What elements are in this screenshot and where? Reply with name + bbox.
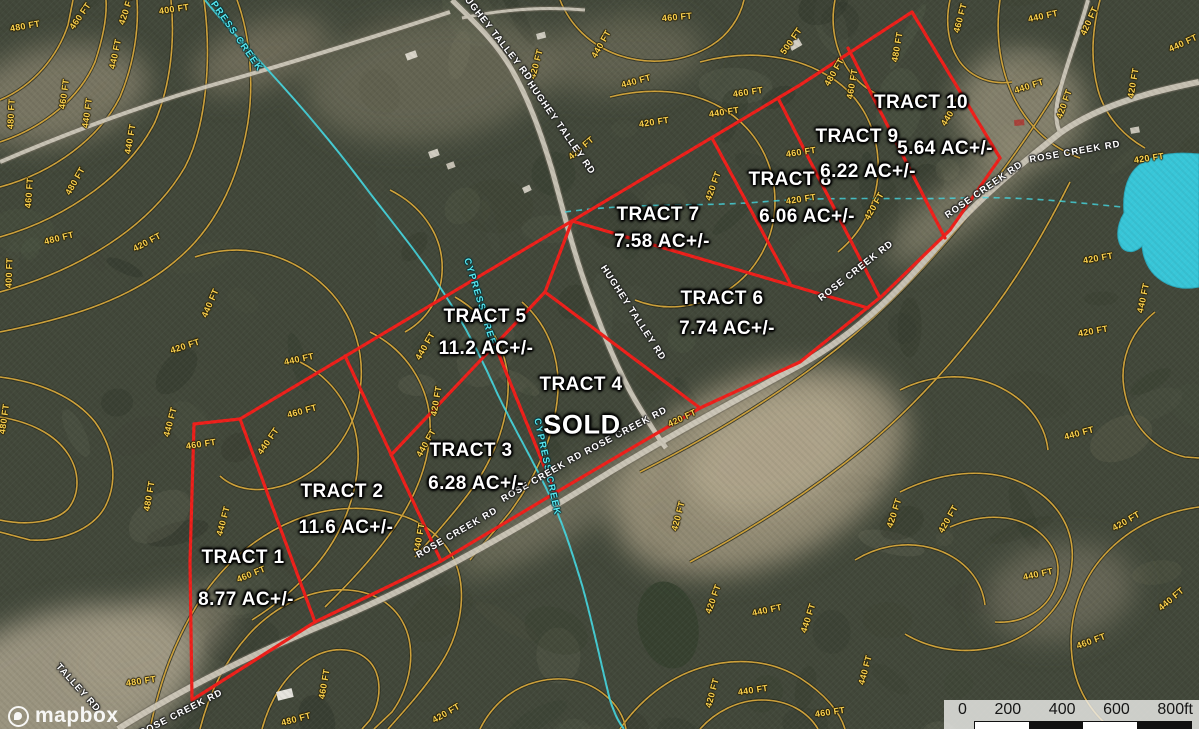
road-name-label: ROSE CREEK RD — [1029, 139, 1122, 166]
road-name-label: ROSE CREEK RD — [816, 238, 895, 303]
contour-elevation-label: 440 FT — [589, 28, 613, 59]
scale-bar-segment — [1137, 722, 1191, 729]
scale-tick-label: 400 — [1049, 701, 1076, 719]
road-name-label: ROSE CREEK RD — [414, 505, 499, 561]
tract-name-label: TRACT 2 — [300, 481, 383, 503]
scale-tick-label: 600 — [1103, 701, 1130, 719]
contour-elevation-label: 440 FT — [199, 287, 220, 319]
contour-elevation-label: 460 FT — [1075, 631, 1107, 651]
contour-elevation-label: 420 FT — [862, 190, 886, 221]
contour-elevation-label: 460 FT — [185, 437, 216, 451]
contour-elevation-label: 480 FT — [0, 403, 11, 434]
contour-elevation-label: 420 FT — [1078, 5, 1100, 37]
contour-elevation-label: 480 FT — [63, 165, 87, 196]
contour-elevation-label: 440 FT — [122, 123, 137, 155]
tract-name-label: TRACT 6 — [680, 288, 763, 310]
tract-name-label: TRACT 5 — [443, 306, 526, 328]
tract-acreage-label: 6.22 AC+/- — [820, 161, 916, 183]
creek-name-label: CYPRESS CREEK — [199, 0, 265, 74]
contour-elevation-label: 440 FT — [1013, 77, 1045, 96]
contour-elevation-label: 440 FT — [413, 330, 437, 361]
contour-elevation-label: 440 FT — [161, 406, 179, 438]
contour-elevation-label: 480 FT — [5, 99, 17, 130]
contour-elevation-label: 400 FT — [3, 258, 14, 289]
contour-elevation-label: 440 FT — [255, 426, 281, 457]
contour-elevation-label: 460 FT — [23, 178, 35, 209]
scale-tick-label: 0 — [958, 701, 967, 719]
contour-elevation-label: 500 FT — [778, 26, 804, 57]
road-name-label: ROSE CREEK RD — [943, 159, 1025, 221]
contour-elevation-label: 460 FT — [67, 1, 93, 32]
tract-name-label: TRACT 4 — [539, 374, 622, 396]
tract-acreage-label: 11.6 AC+/- — [299, 517, 394, 539]
contour-elevation-label: 480 FT — [889, 31, 904, 63]
contour-elevation-label: 480 FT — [822, 56, 846, 87]
road-name-label: HUGHEY TALLEY RD — [525, 79, 598, 177]
contour-elevation-label: 460 FT — [57, 78, 71, 109]
tract-acreage-label: 6.28 AC+/- — [428, 473, 524, 495]
scale-tick-label: 200 — [995, 701, 1022, 719]
tract-name-label: TRACT 9 — [815, 126, 898, 148]
tract-acreage-label: 11.2 AC+/- — [439, 338, 534, 360]
contour-elevation-label: 420 FT — [703, 583, 723, 615]
contour-elevation-label: 460 FT — [951, 2, 969, 34]
contour-elevation-label: 440 FT — [107, 38, 123, 70]
road-name-label: HUGHEY TALLEY RD — [457, 0, 534, 83]
contour-elevation-label: 420 FT — [666, 407, 698, 429]
contour-elevation-label: 420 FT — [169, 337, 201, 356]
contour-elevation-label: 420 FT — [669, 500, 687, 532]
contour-elevation-label: 460 FT — [785, 145, 816, 159]
contour-elevation-label: 440 FT — [856, 654, 874, 686]
contour-elevation-label: 480 FT — [280, 710, 312, 728]
tract-sold-label: SOLD — [543, 410, 620, 441]
scale-bar: 0200400600800ft — [944, 700, 1199, 729]
contour-elevation-label: 440 FT — [1156, 585, 1186, 612]
contour-elevation-label: 480 FT — [9, 18, 41, 33]
contour-elevation-label: 440 FT — [799, 602, 818, 634]
contour-elevation-label: 480 FT — [43, 229, 75, 246]
contour-elevation-label: 420 FT — [936, 503, 960, 534]
contour-elevation-label: 460 FT — [661, 11, 692, 24]
tract-name-label: TRACT 3 — [429, 440, 512, 462]
contour-elevation-label: 420 FT — [885, 497, 904, 529]
contour-elevation-label: 440 FT — [214, 505, 232, 537]
tract-acreage-label: 7.74 AC+/- — [679, 318, 775, 340]
contour-elevation-label: 480 FT — [125, 674, 156, 688]
contour-elevation-label: 440 FT — [751, 602, 783, 618]
tract-name-label: TRACT 1 — [201, 547, 284, 569]
contour-elevation-label: 420 FT — [430, 701, 461, 725]
scale-bar-ticks: 0200400600800ft — [944, 700, 1199, 719]
road-name-label: ROSE CREEK RD — [137, 687, 224, 729]
contour-elevation-label: 420 FT — [1110, 509, 1141, 533]
mapbox-wordmark: mapbox — [35, 704, 119, 728]
contour-elevation-label: 440 FT — [283, 351, 315, 367]
contour-elevation-label: 420 FT — [1082, 250, 1114, 265]
map-canvas: 480 FT460 FT420 FT400 FT440 FT460 FT440 … — [0, 0, 1199, 729]
contour-elevation-label: 440 FT — [1027, 8, 1059, 24]
road-name-label: HUGHEY TALLEY RD — [598, 263, 668, 363]
contour-elevation-label: 460 FT — [286, 402, 318, 420]
contour-elevation-label: 420 FT — [1125, 67, 1140, 99]
contour-elevation-label: 460 FT — [316, 668, 331, 700]
contour-elevation-label: 440 FT — [620, 72, 652, 90]
contour-elevation-label: 440 FT — [1063, 424, 1095, 442]
contour-elevation-label: 460 FT — [814, 705, 845, 719]
tract-acreage-label: 7.58 AC+/- — [614, 231, 710, 253]
scale-bar-segment — [1083, 722, 1137, 729]
scale-bar-segment — [975, 722, 1029, 729]
mapbox-icon — [8, 706, 29, 727]
tract-acreage-label: 6.06 AC+/- — [759, 206, 855, 228]
scale-bar-segment — [1029, 722, 1083, 729]
contour-elevation-label: 460 FT — [844, 68, 859, 100]
contour-elevation-label: 440 FT — [80, 97, 94, 128]
contour-elevation-label: 400 FT — [158, 2, 189, 16]
map-labels-layer: 480 FT460 FT420 FT400 FT440 FT460 FT440 … — [0, 0, 1199, 729]
contour-elevation-label: 480 FT — [141, 480, 156, 512]
tract-acreage-label: 5.64 AC+/- — [897, 138, 993, 160]
mapbox-attribution: mapbox — [8, 704, 119, 728]
contour-elevation-label: 440 FT — [737, 683, 768, 697]
contour-elevation-label: 420 FT — [638, 115, 669, 129]
contour-elevation-label: 440 FT — [1022, 566, 1054, 582]
contour-elevation-label: 420 FT — [1133, 151, 1164, 165]
tract-name-label: TRACT 10 — [874, 92, 968, 114]
tract-name-label: TRACT 7 — [616, 204, 699, 226]
contour-elevation-label: 440 FT — [708, 105, 739, 119]
contour-elevation-label: 420 FT — [1077, 323, 1109, 338]
scale-bar-segments — [974, 721, 1192, 729]
tract-name-label: TRACT 8 — [748, 169, 831, 191]
contour-elevation-label: 420 FT — [1054, 88, 1074, 120]
tract-acreage-label: 8.77 AC+/- — [198, 589, 294, 611]
contour-elevation-label: 420 FT — [703, 170, 723, 202]
contour-elevation-label: 460 FT — [732, 85, 763, 99]
contour-elevation-label: 420 FT — [785, 192, 816, 206]
contour-elevation-label: 420 FT — [131, 230, 162, 253]
contour-elevation-label: 440 FT — [1135, 282, 1151, 314]
contour-elevation-label: 420 FT — [428, 385, 443, 417]
contour-elevation-label: 440 FT — [1167, 32, 1199, 54]
contour-elevation-label: 420 FT — [703, 677, 721, 709]
contour-elevation-label: 420 FT — [117, 0, 136, 26]
scale-tick-label: 800ft — [1157, 701, 1193, 719]
